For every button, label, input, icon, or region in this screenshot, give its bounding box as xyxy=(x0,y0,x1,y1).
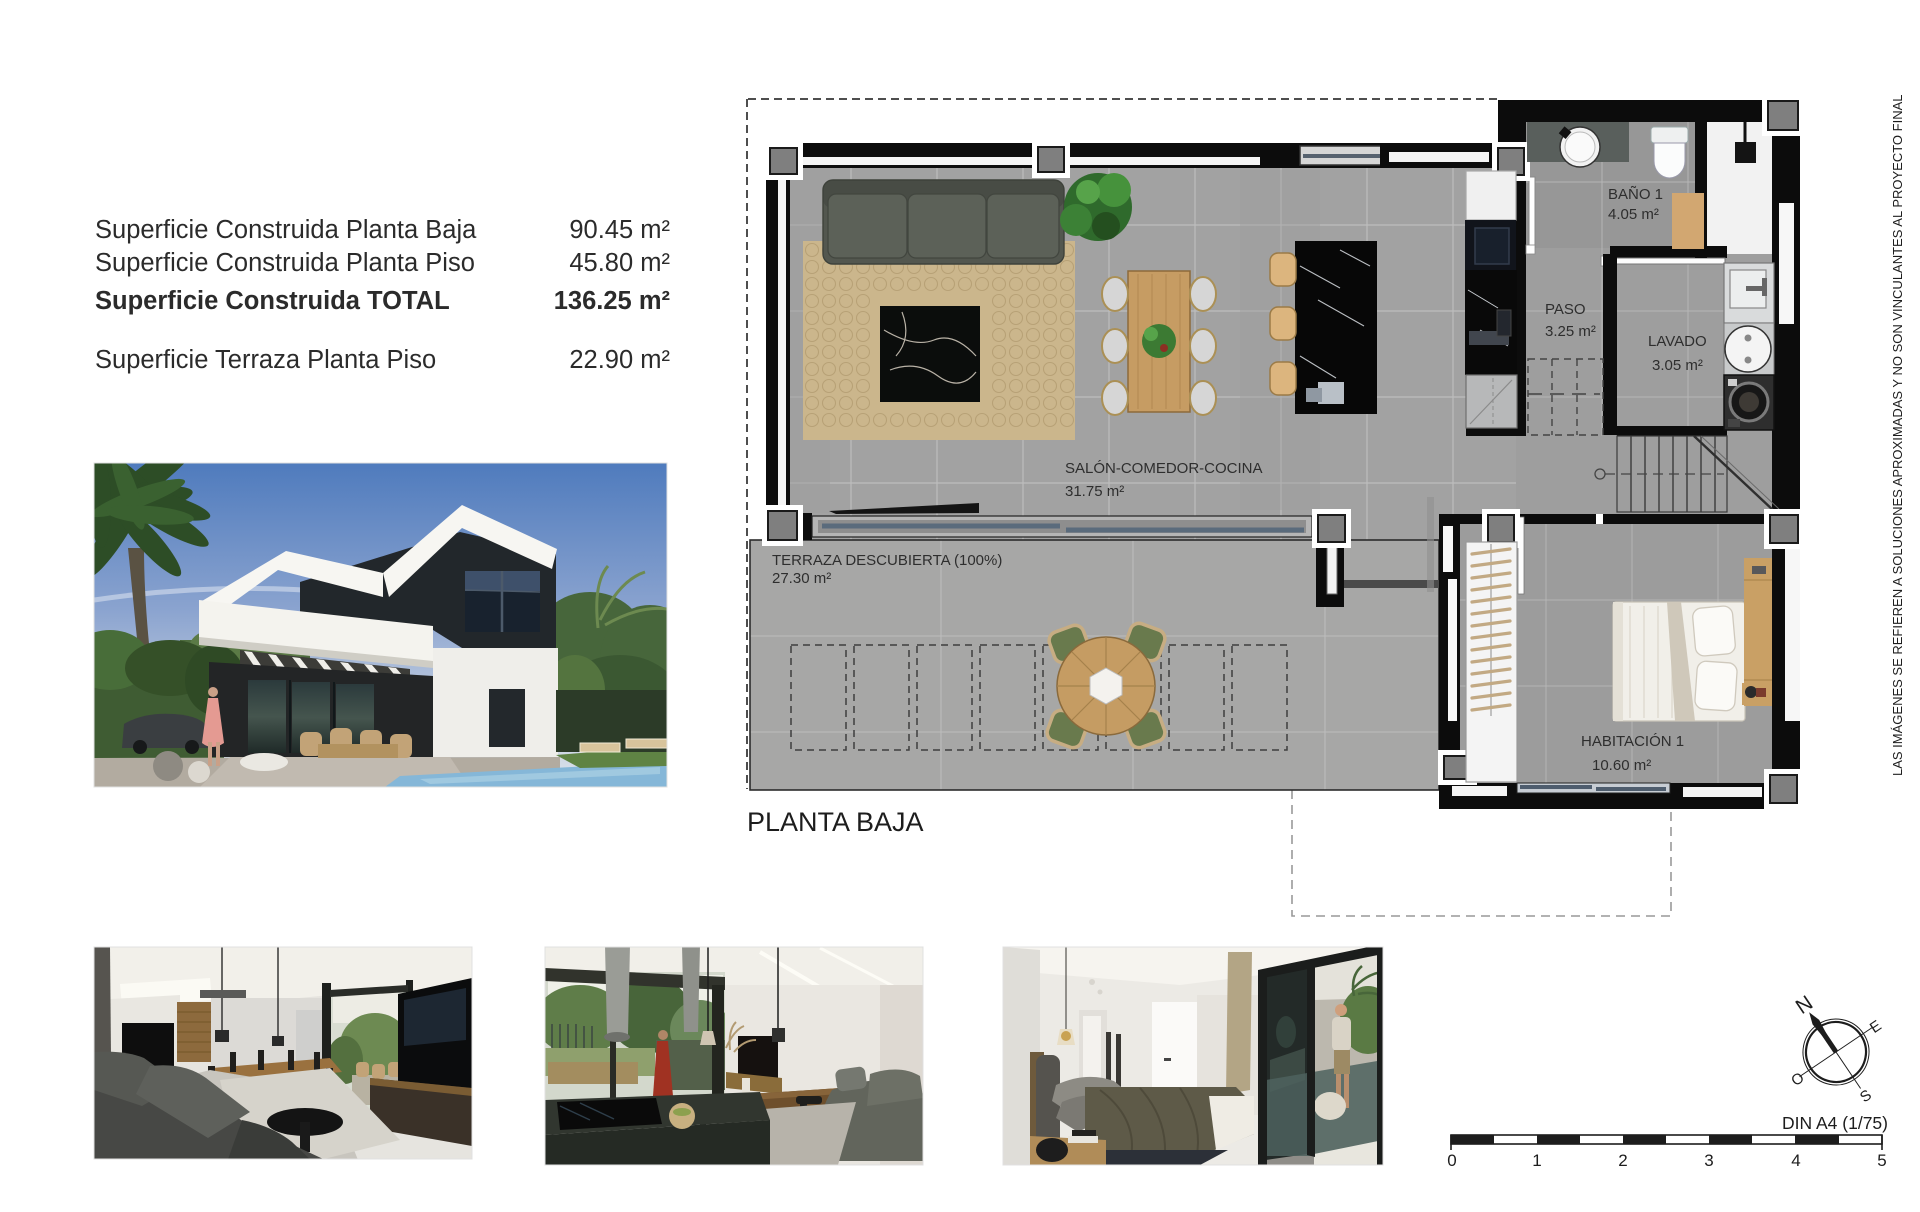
svg-text:27.30 m²: 27.30 m² xyxy=(772,570,831,587)
svg-text:SALÓN-COMEDOR-COCINA: SALÓN-COMEDOR-COCINA xyxy=(1065,460,1263,477)
svg-text:3: 3 xyxy=(1704,1151,1713,1170)
svg-text:HABITACIÓN 1: HABITACIÓN 1 xyxy=(1581,733,1684,750)
svg-text:O: O xyxy=(1788,1069,1807,1090)
svg-text:2: 2 xyxy=(1618,1151,1627,1170)
svg-text:N: N xyxy=(1792,991,1817,1019)
svg-text:LAS IMÁGENES SE REFIEREN A SOL: LAS IMÁGENES SE REFIEREN A SOLUCIONES AP… xyxy=(1890,95,1905,777)
svg-text:DIN A4 (1/75): DIN A4 (1/75) xyxy=(1782,1113,1888,1133)
svg-text:S: S xyxy=(1857,1087,1875,1107)
svg-text:4: 4 xyxy=(1791,1151,1800,1170)
svg-text:LAVADO: LAVADO xyxy=(1648,333,1707,350)
svg-text:1: 1 xyxy=(1532,1151,1541,1170)
svg-text:PLANTA BAJA: PLANTA BAJA xyxy=(747,807,924,837)
svg-text:3.05 m²: 3.05 m² xyxy=(1652,357,1703,374)
svg-text:TERRAZA DESCUBIERTA (100%): TERRAZA DESCUBIERTA (100%) xyxy=(772,552,1002,569)
svg-text:E: E xyxy=(1867,1017,1885,1037)
svg-text:4.05 m²: 4.05 m² xyxy=(1608,206,1659,223)
svg-text:5: 5 xyxy=(1877,1151,1886,1170)
svg-text:PASO: PASO xyxy=(1545,301,1586,318)
svg-text:0: 0 xyxy=(1447,1151,1456,1170)
svg-text:3.25 m²: 3.25 m² xyxy=(1545,323,1596,340)
svg-text:10.60 m²: 10.60 m² xyxy=(1592,757,1651,774)
svg-text:31.75 m²: 31.75 m² xyxy=(1065,483,1124,500)
svg-text:BAÑO 1: BAÑO 1 xyxy=(1608,186,1663,203)
